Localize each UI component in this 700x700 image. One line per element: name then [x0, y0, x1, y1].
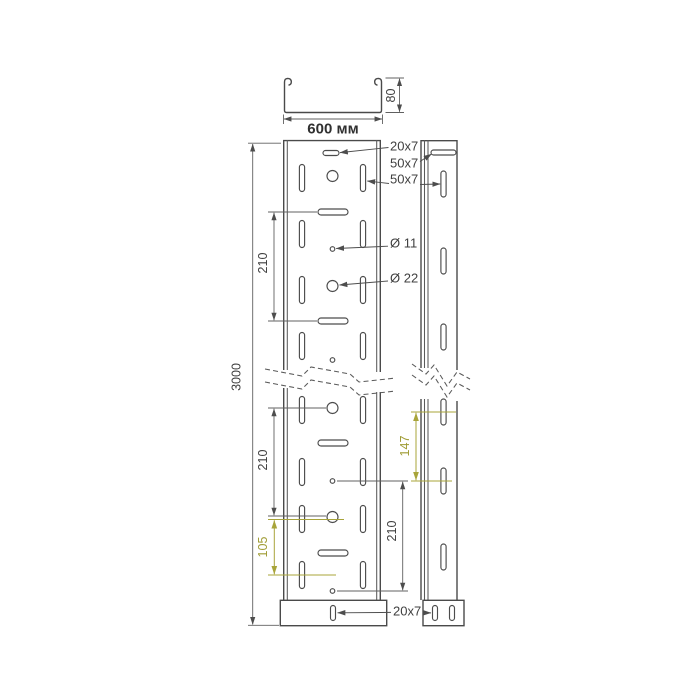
flange-slot — [433, 606, 438, 621]
small-hole-11 — [330, 589, 335, 594]
large-hole-22 — [327, 403, 338, 414]
vslot-perforation — [441, 544, 446, 570]
vslot-perforation — [360, 397, 365, 424]
vslot-perforation — [441, 324, 446, 350]
large-hole-22 — [327, 512, 338, 523]
width-dimension-label: 600 мм — [307, 120, 358, 137]
hslot-perforation — [318, 209, 348, 215]
plan-center-column — [318, 151, 348, 594]
callout-small-hole-label: Ø 11 — [390, 235, 417, 250]
plan-view — [265, 140, 396, 626]
break-line — [265, 380, 396, 395]
vslot-perforation — [299, 459, 304, 486]
vslot-perforation — [299, 397, 304, 424]
small-hslot-20x7 — [323, 151, 339, 156]
vslot-perforation — [360, 459, 365, 486]
small-hole-11 — [330, 247, 335, 252]
callout-rail-slot-leader — [420, 154, 432, 162]
small-hole-11 — [330, 479, 335, 484]
length-dimension-label: 3000 — [229, 363, 243, 391]
large-hole-22 — [327, 171, 338, 182]
vslot-perforation — [360, 277, 365, 304]
drawing-canvas: 600 мм 80 — [0, 0, 700, 700]
vslot-perforation — [299, 221, 304, 248]
callout-wall-slot-leader-right — [420, 184, 440, 185]
callout-wall-slot-label: 50x7 — [390, 171, 418, 186]
vslot-perforation — [441, 171, 446, 197]
callout-wall-slot-leader-left — [367, 181, 389, 184]
callout-large-hole-label: Ø 22 — [390, 270, 418, 285]
break-line — [412, 375, 470, 397]
pitch-lower-label: 210 — [256, 450, 270, 471]
vslot-perforation — [299, 277, 304, 304]
callout-rail-slot-label: 50x7 — [390, 155, 418, 170]
vslot-perforation — [360, 221, 365, 248]
side-break-symbol — [412, 364, 470, 397]
height-dimension-label: 80 — [384, 89, 398, 103]
hslot-perforation — [318, 440, 348, 446]
vslot-perforation — [441, 248, 446, 274]
side-top-rail-slot — [431, 150, 456, 155]
vslot-perforation — [299, 165, 304, 192]
side-view — [412, 140, 470, 626]
pitch-upper-label: 210 — [256, 253, 270, 274]
callout-bottom-slot-label: 20x7 — [393, 603, 421, 618]
vslot-perforation — [360, 506, 365, 533]
callout-top-slot-label: 20x7 — [390, 138, 418, 153]
hslot-perforation — [318, 550, 348, 556]
flange-slot — [450, 606, 455, 621]
hslot-perforation — [318, 318, 348, 324]
section-profile — [285, 78, 382, 112]
large-hole-22 — [327, 281, 338, 292]
offset-label: 105 — [256, 537, 270, 558]
callout-top-slot-leader — [340, 148, 389, 153]
flange-slot — [331, 606, 336, 621]
cable-tray-technical-drawing: 600 мм 80 — [0, 0, 700, 700]
vslot-perforation — [360, 333, 365, 360]
side-pitch-label: 147 — [398, 436, 412, 457]
vslot-perforation — [299, 333, 304, 360]
side-slot-column — [441, 171, 446, 570]
plan-right-slot-column — [360, 165, 365, 589]
vslot-perforation — [360, 562, 365, 589]
vslot-perforation — [360, 165, 365, 192]
small-hole-11 — [330, 358, 335, 363]
section-view: 600 мм 80 — [284, 78, 405, 137]
pitch-right-label: 210 — [385, 521, 399, 542]
